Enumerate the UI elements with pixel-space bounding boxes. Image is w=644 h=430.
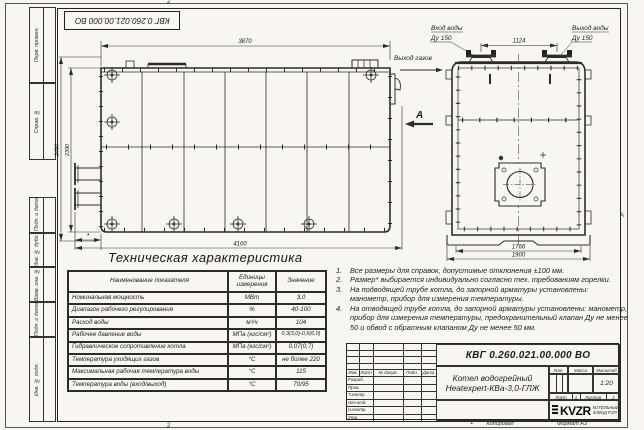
stamp-col-data: Дата	[421, 370, 436, 375]
note-item: 4. На отводящей трубе котла, до запорной…	[336, 304, 628, 332]
stamp-scale-label: Масштаб	[593, 366, 620, 374]
cross-mark	[540, 152, 546, 158]
stamp-logo-cell: KVZR КОТЕЛЬНЫЙ ЗАВОД РЭП	[549, 400, 620, 421]
note-number: 1.	[336, 266, 350, 275]
note-item: 2. Размер* выбирается индивидуально согл…	[336, 275, 628, 284]
company-name: КОТЕЛЬНЫЙ ЗАВОД РЭП	[593, 406, 619, 416]
table-cell: 0,07(0,7)	[276, 342, 326, 354]
dim-2390: 2390	[65, 143, 71, 157]
table-cell: °С	[228, 366, 276, 378]
format-label: Формат А3	[540, 421, 604, 427]
gas-outlet-label: Выход газов	[394, 54, 432, 62]
note-text: На подводящей трубе котла, до запорной а…	[350, 285, 628, 304]
dim-4100: 4100	[233, 242, 247, 248]
table-cell: МПа (кгс/см²)	[228, 342, 276, 354]
stamp-row-tkontr: Т.контр.	[348, 392, 366, 397]
top-hatch-detail	[352, 60, 378, 68]
stamp-row-prov: Пров.	[348, 385, 360, 390]
stamp-sheet-row: Лист 1 Листов 2	[549, 393, 620, 400]
stamp-row-nkontr: Н.контр.	[348, 407, 367, 412]
table-cell: Гидравлическое сопротивление котла	[68, 342, 228, 354]
table-cell: 104	[276, 317, 326, 329]
table-cell: не более 220	[276, 354, 326, 366]
callout-labels: Вход воды Ду 150 Выход воды Ду 150 Выход…	[394, 24, 609, 128]
table-cell: 70/95	[276, 379, 326, 391]
sensor-dot	[499, 156, 503, 160]
table-cell: 40-100	[276, 304, 326, 316]
side-view	[75, 60, 400, 232]
dim-2480: 2480	[55, 143, 61, 157]
stamp-col-docnum: № докум.	[373, 370, 403, 375]
col-header-unit: Единицы измерения	[228, 271, 276, 292]
company-line2: ЗАВОД РЭП	[593, 411, 619, 416]
dim-3870: 3870	[238, 39, 252, 45]
table-cell: Диапазон рабочего регулирования	[68, 304, 228, 316]
note-text: Все размеры для справок, допустимые откл…	[350, 266, 628, 275]
note-item: 3. На подводящей трубе котла, до запорно…	[336, 285, 628, 304]
table-cell: %	[228, 304, 276, 316]
tech-table: Наименование показателя Единицы измерени…	[67, 270, 327, 392]
table-cell: 0,3(3,0)-0,6(6,0)	[276, 329, 326, 341]
water-outlet-label: Выход воды	[572, 24, 609, 32]
rear-pipe-stubs	[75, 163, 101, 210]
table-cell: МПа (кгс/см²)	[228, 329, 276, 341]
drawing-sheet: 2 2 1 А КВГ 0.260.021.00.000 ВО Перв. пр…	[0, 0, 644, 430]
notes-list: 1. Все размеры для справок, допустимые о…	[336, 266, 628, 332]
water-inlet-label: Вход воды	[431, 24, 463, 32]
gas-flow-arrow	[436, 68, 443, 72]
dim-1124: 1124	[513, 39, 527, 45]
water-outlet-dn: Ду 150	[571, 35, 593, 42]
top-bracket	[126, 61, 134, 68]
note-number: 2.	[336, 275, 350, 284]
stamp-mass-cell	[568, 374, 593, 393]
stamp-row-utv: Утв.	[348, 415, 358, 420]
table-cell: °С	[228, 379, 276, 391]
tech-table-title: Техническая характеристика	[108, 250, 302, 265]
table-cell: Температура воды (вход/выход)	[68, 379, 228, 391]
note-text: Размер* выбирается индивидуально согласн…	[350, 275, 628, 284]
note-number: 3.	[336, 285, 350, 304]
table-cell: м³/ч	[228, 317, 276, 329]
water-inlet-dn: Ду 150	[430, 35, 452, 42]
table-cell: Рабочее давление воды	[68, 329, 228, 341]
dim-star: *	[87, 233, 90, 240]
table-cell: 115	[276, 366, 326, 378]
stamp-product-name: Котел водогрейный Heatexpert-КВа-3,0-ГЛЖ	[436, 366, 549, 400]
stamp-col-list: Лист	[359, 370, 373, 375]
table-cell: Расход воды	[68, 317, 228, 329]
dim-1900: 1900	[512, 253, 526, 259]
table-cell: Температура уходящих газов	[68, 354, 228, 366]
table-cell: 3,0	[276, 292, 326, 304]
table-cell: Максимальная рабочая температура воды	[68, 366, 228, 378]
note-number: 4.	[336, 304, 350, 332]
stamp-empty-cell	[436, 400, 549, 421]
kvzr-logo-icon	[552, 405, 558, 416]
stamp-row-nachotd: Нач.отд.	[348, 400, 367, 405]
stamp-lit-cells	[549, 374, 568, 393]
note-item: 1. Все размеры для справок, допустимые о…	[336, 266, 628, 275]
burner-plate	[495, 163, 545, 206]
gas-outlet-flange	[390, 74, 400, 104]
view-a-letter: А	[415, 110, 423, 121]
table-cell: °С	[228, 354, 276, 366]
table-cell: МВт	[228, 292, 276, 304]
stamp-doc-number: КВГ 0.260.021.00.000 ВО	[436, 344, 620, 366]
title-block: Изм. Лист № докум. Подп. Дата Разраб. Пр…	[346, 343, 619, 420]
stamp-col-izm: Изм.	[347, 370, 359, 375]
product-name-line2: Heatexpert-КВа-3,0-ГЛЖ	[446, 383, 540, 394]
target-symbols	[104, 67, 379, 232]
note-text: На отводящей трубе котла, до запорной ар…	[350, 304, 628, 332]
stamp-lit-label: Лит.	[549, 366, 568, 374]
front-view	[446, 50, 591, 245]
dim-1766: 1766	[512, 245, 526, 251]
stamp-col-podp: Подп.	[403, 370, 421, 375]
stamp-row-razrab: Разраб.	[348, 377, 364, 382]
copied-label: Копировал	[468, 421, 532, 427]
kvzr-logo-text: KVZR	[560, 404, 591, 418]
stamp-mass-label: Масса	[568, 366, 593, 374]
product-name-line1: Котел водогрейный	[453, 373, 533, 384]
stamp-scale-value: 1:20	[593, 374, 620, 393]
view-a-arrow	[405, 121, 414, 128]
col-header-name: Наименование показателя	[68, 271, 228, 292]
table-cell: Номинальная мощность	[68, 292, 228, 304]
col-header-value: Значение	[276, 271, 326, 292]
